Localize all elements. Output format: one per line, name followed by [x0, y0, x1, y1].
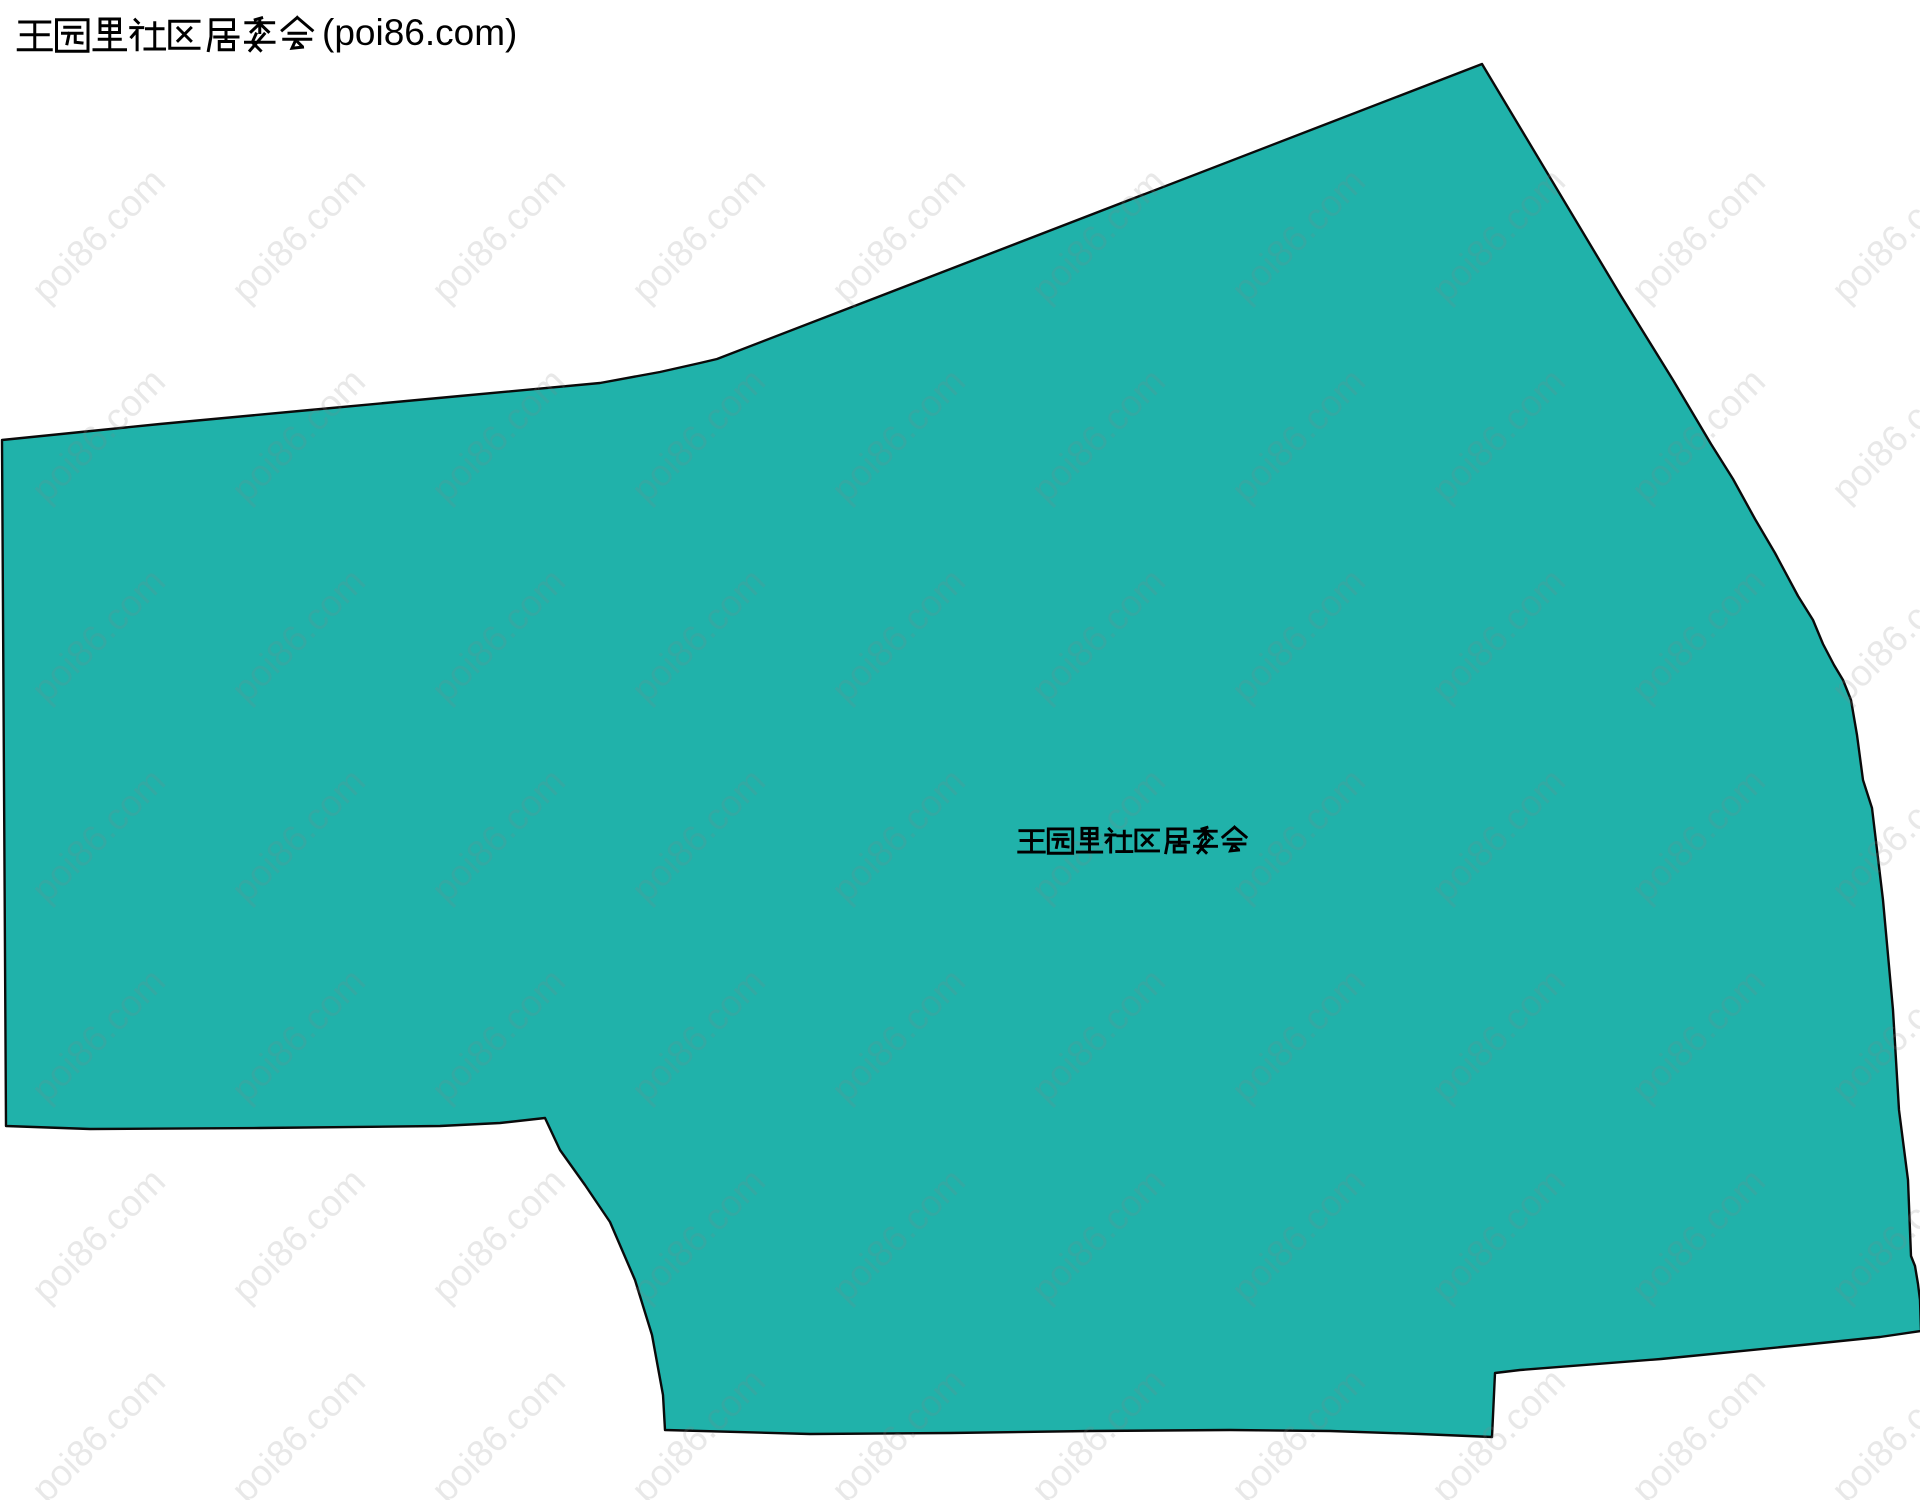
svg-text:(poi86.com): (poi86.com): [322, 12, 517, 53]
